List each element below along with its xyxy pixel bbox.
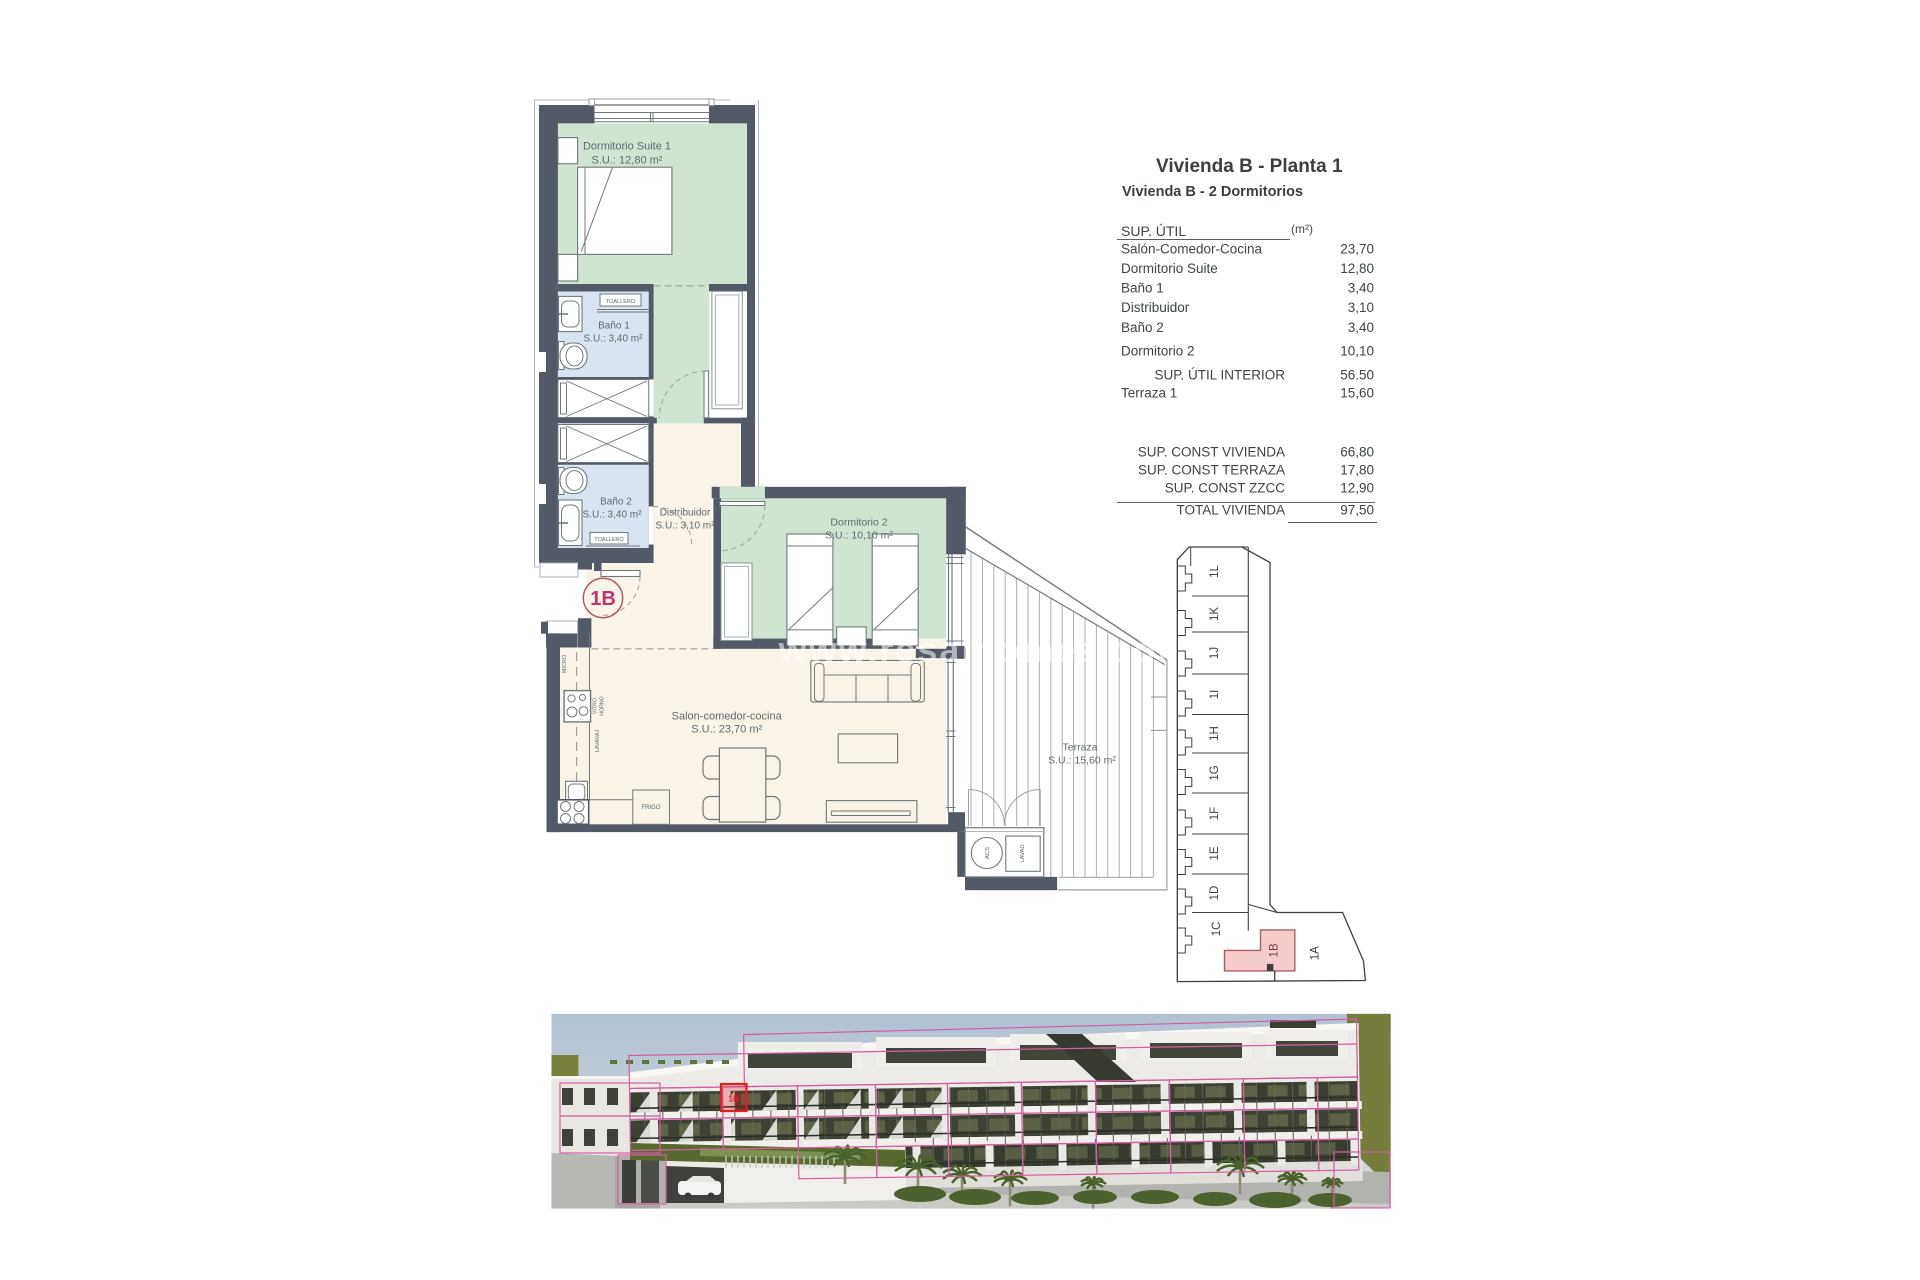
svg-text:1J: 1J: [1209, 647, 1221, 659]
svg-text:VITRO: VITRO: [593, 698, 599, 714]
svg-text:56.50: 56.50: [1340, 368, 1374, 383]
svg-text:1G: 1G: [1209, 765, 1221, 780]
svg-text:17,80: 17,80: [1340, 463, 1374, 478]
svg-text:12,90: 12,90: [1340, 481, 1374, 496]
svg-text:Salon-comedor-cocina: Salon-comedor-cocina: [672, 711, 783, 723]
svg-text:1B: 1B: [728, 1094, 739, 1104]
svg-text:TOALLERO: TOALLERO: [606, 299, 636, 305]
svg-text:LAVAD: LAVAD: [1020, 844, 1026, 862]
svg-text:HORNO: HORNO: [600, 696, 606, 715]
svg-text:(m²): (m²): [1291, 222, 1313, 236]
svg-text:LAVAVAJ: LAVAVAJ: [595, 729, 601, 752]
svg-text:Baño 1: Baño 1: [598, 321, 630, 332]
svg-text:Dormitorio 2: Dormitorio 2: [830, 517, 887, 529]
svg-text:S.U.: 12,80 m²: S.U.: 12,80 m²: [592, 155, 663, 167]
svg-text:SUP. CONST TERRAZA: SUP. CONST TERRAZA: [1138, 463, 1285, 478]
svg-text:Dormitorio Suite 1: Dormitorio Suite 1: [583, 141, 671, 153]
svg-text:S.U.: 3,40 m²: S.U.: 3,40 m²: [584, 334, 644, 345]
svg-text:Salón-Comedor-Cocina: Salón-Comedor-Cocina: [1121, 242, 1263, 257]
svg-text:23,70: 23,70: [1340, 242, 1374, 257]
svg-text:1B: 1B: [590, 588, 616, 610]
svg-text:Distribuidor: Distribuidor: [1121, 300, 1190, 315]
svg-text:TOTAL VIVIENDA: TOTAL VIVIENDA: [1176, 503, 1285, 518]
svg-text:Baño 2: Baño 2: [1121, 320, 1164, 335]
svg-text:S.U.: 10,10 m²: S.U.: 10,10 m²: [825, 530, 893, 542]
svg-text:www.resalhomes.com: www.resalhomes.com: [778, 629, 1192, 670]
svg-text:Dormitorio 2: Dormitorio 2: [1121, 344, 1195, 359]
svg-text:97,50: 97,50: [1340, 503, 1374, 518]
svg-text:S.U.: 3,10 m²: S.U.: 3,10 m²: [656, 521, 716, 532]
svg-text:3,40: 3,40: [1348, 320, 1374, 335]
svg-text:TOALLERO: TOALLERO: [594, 537, 624, 543]
svg-text:1L: 1L: [1209, 565, 1221, 578]
svg-text:Dormitorio Suite: Dormitorio Suite: [1121, 261, 1218, 276]
svg-text:Baño 1: Baño 1: [1121, 281, 1164, 296]
svg-text:1C: 1C: [1211, 922, 1223, 937]
svg-text:Terraza: Terraza: [1062, 742, 1097, 754]
svg-text:66,80: 66,80: [1340, 445, 1374, 460]
svg-text:S.U.: 23,70 m²: S.U.: 23,70 m²: [691, 724, 762, 736]
svg-text:1E: 1E: [1209, 846, 1221, 860]
svg-text:MICRO: MICRO: [562, 654, 568, 673]
svg-text:1F: 1F: [1209, 807, 1221, 820]
svg-text:1B: 1B: [1269, 943, 1281, 957]
svg-text:1A: 1A: [1309, 946, 1321, 960]
svg-text:SUP. ÚTIL INTERIOR: SUP. ÚTIL INTERIOR: [1154, 368, 1285, 383]
svg-text:FRIGO: FRIGO: [642, 805, 661, 811]
svg-text:SUP. CONST VIVIENDA: SUP. CONST VIVIENDA: [1138, 445, 1285, 460]
svg-text:Terraza 1: Terraza 1: [1121, 386, 1177, 401]
svg-text:1D: 1D: [1209, 886, 1221, 901]
svg-text:1H: 1H: [1209, 726, 1221, 741]
svg-text:1K: 1K: [1209, 607, 1221, 621]
svg-text:15,60: 15,60: [1340, 386, 1374, 401]
svg-text:Distribuidor: Distribuidor: [660, 508, 711, 519]
svg-text:SUP. ÚTIL: SUP. ÚTIL: [1121, 223, 1186, 239]
svg-text:S.U.: 3,40 m²: S.U.: 3,40 m²: [583, 510, 643, 521]
svg-text:10,10: 10,10: [1340, 344, 1374, 359]
svg-text:3,40: 3,40: [1348, 281, 1374, 296]
svg-text:ACS: ACS: [985, 847, 991, 859]
svg-text:12,80: 12,80: [1340, 261, 1374, 276]
svg-text:3,10: 3,10: [1348, 300, 1374, 315]
svg-text:S.U.: 15,60 m²: S.U.: 15,60 m²: [1048, 755, 1116, 767]
svg-text:1I: 1I: [1209, 690, 1221, 700]
svg-text:Baño 2: Baño 2: [600, 497, 632, 508]
svg-text:Vivienda B - 2 Dormitorios: Vivienda B - 2 Dormitorios: [1122, 184, 1303, 200]
svg-text:Vivienda B - Planta 1: Vivienda B - Planta 1: [1156, 156, 1343, 177]
svg-text:SUP. CONST ZZCC: SUP. CONST ZZCC: [1165, 481, 1286, 496]
